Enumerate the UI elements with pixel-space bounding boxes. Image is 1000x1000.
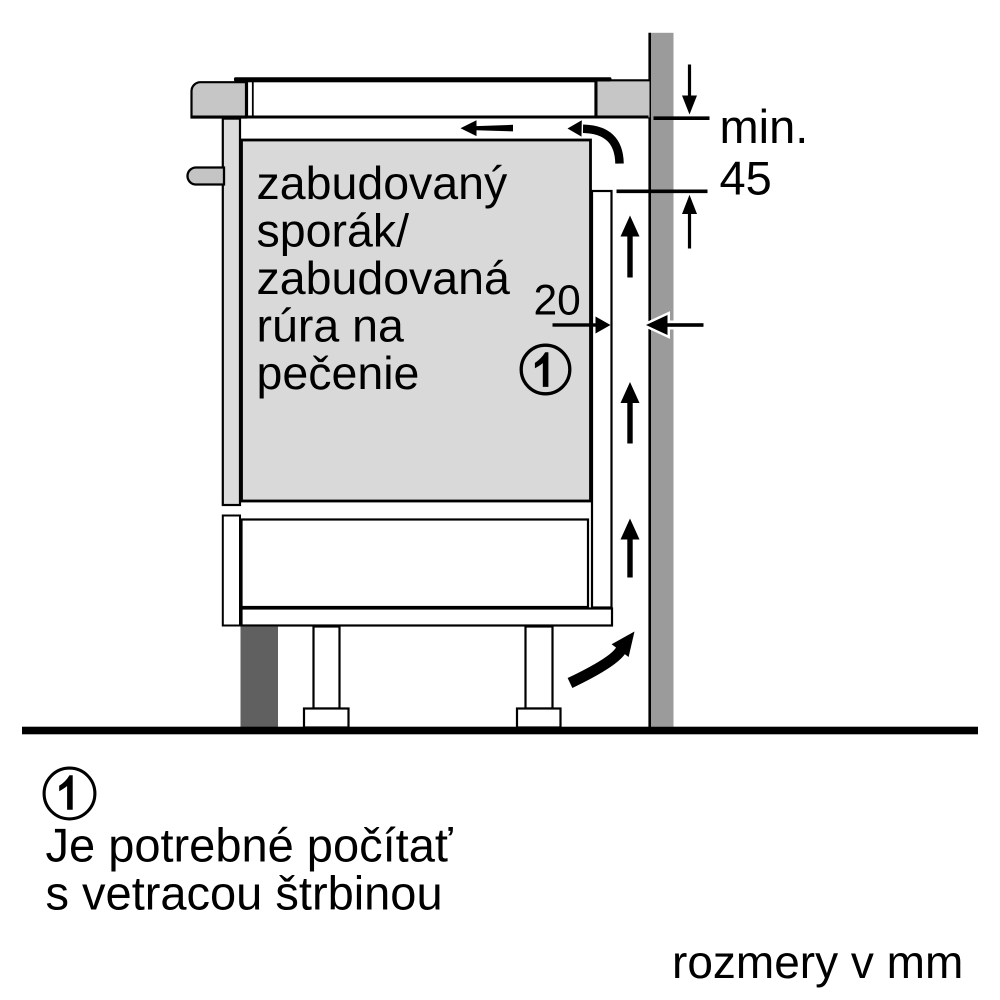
svg-text:s vetracou štrbinou: s vetracou štrbinou	[46, 867, 443, 920]
svg-text:20: 20	[534, 278, 581, 325]
svg-text:pečenie: pečenie	[257, 347, 420, 399]
svg-text:zabudovaný: zabudovaný	[257, 157, 509, 209]
svg-text:zabudovaná: zabudovaná	[257, 252, 511, 304]
svg-text:min.: min.	[720, 100, 809, 153]
svg-text:Je potrebné počítať: Je potrebné počítať	[46, 819, 454, 872]
svg-text:rozmery v mm: rozmery v mm	[672, 936, 963, 988]
svg-text:45: 45	[720, 152, 772, 205]
svg-text:sporák/: sporák/	[257, 205, 410, 257]
svg-text:rúra na: rúra na	[257, 300, 404, 352]
